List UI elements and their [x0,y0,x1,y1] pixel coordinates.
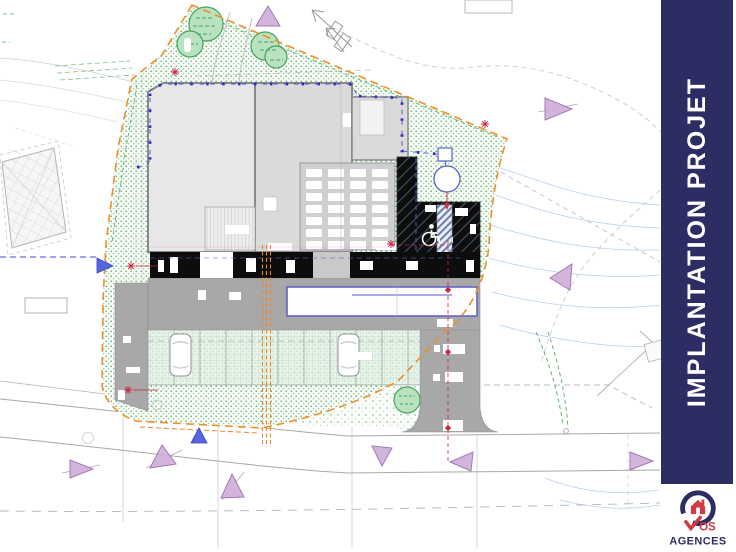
north-arrow-icon [312,10,352,52]
site-plan-canvas [0,0,736,552]
detail-frame [465,0,512,13]
slide-title: IMPLANTATION PROJET [683,77,712,407]
parking-row [148,330,420,385]
legend-frame [25,298,67,313]
house-icon [691,500,705,515]
logo-agences-text: AGENCES [669,535,726,547]
slide: IMPLANTATION PROJET OS AGENCES [0,0,736,552]
logo-vos-text: OS [699,522,716,534]
title-banner: IMPLANTATION PROJET [661,0,733,484]
ground-facade [150,252,480,278]
agency-logo: OS AGENCES [664,486,732,550]
parked-car [170,334,191,376]
neighbor-building [0,141,71,255]
logo-canvas: OS AGENCES [664,486,732,550]
tree-south [394,387,420,413]
